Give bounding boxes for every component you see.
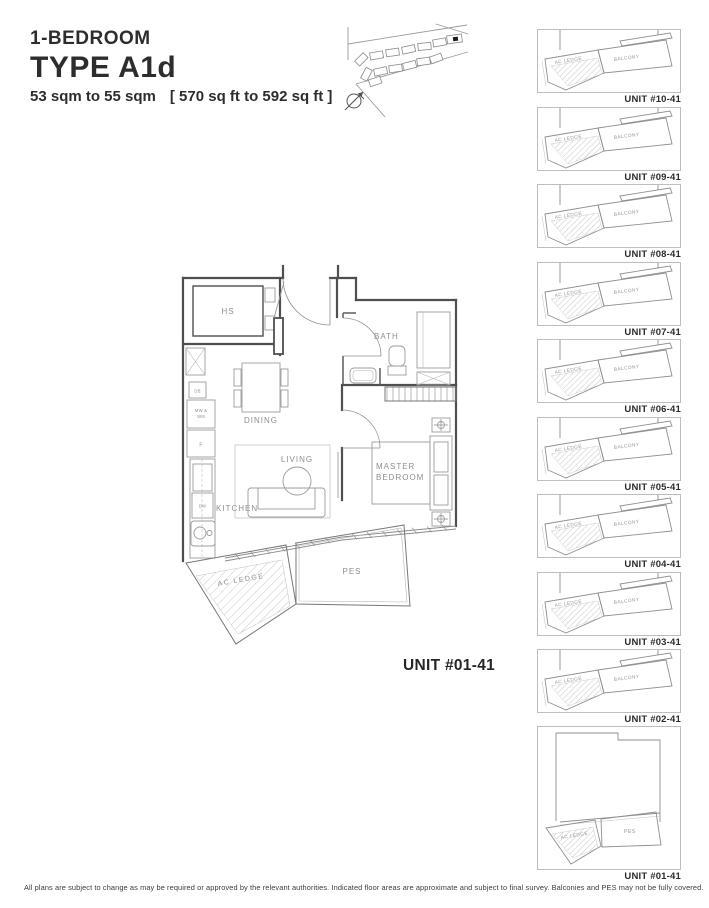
entry-door-swing bbox=[283, 278, 330, 325]
mini-unit-number: UNIT #09-41 bbox=[537, 171, 681, 185]
area-line: 53 sqm to 55 sqm[ 570 sq ft to 592 sq ft… bbox=[30, 88, 332, 105]
bath-walls bbox=[343, 313, 380, 385]
mini-plan-box: AC LEDGE BALCONY bbox=[537, 649, 681, 713]
bath-fixtures bbox=[350, 312, 450, 385]
mini-unit-number: UNIT #10-41 bbox=[537, 93, 681, 107]
floorplan-page: { "header": { "kicker": "1-BEDROOM", "ti… bbox=[0, 0, 709, 908]
mini-balcony-label: BALCONY bbox=[614, 441, 641, 450]
fridge-label: F bbox=[199, 443, 202, 449]
kitchen-fixtures bbox=[186, 348, 215, 558]
living-label: LIVING bbox=[281, 455, 313, 464]
mini-floor-plan: AC LEDGE BALCONY bbox=[538, 418, 680, 480]
site-key-plan bbox=[340, 22, 470, 117]
mini-unit-number: UNIT #02-41 bbox=[537, 713, 681, 727]
mini-floor-plan: AC LEDGE BALCONY bbox=[538, 340, 680, 402]
mini-balcony-label: BALCONY bbox=[614, 364, 641, 373]
mw-wm-label-line1: MW & bbox=[195, 408, 207, 413]
mini-balcony-label: BALCONY bbox=[614, 674, 641, 683]
mini-plan-box: AC LEDGE BALCONY bbox=[537, 417, 681, 481]
ac-unit-icon bbox=[432, 418, 450, 432]
bath-label: BATH bbox=[374, 332, 399, 341]
mini-plan-box: AC LEDGE BALCONY bbox=[537, 29, 681, 93]
mw-wm-label-line2: WM bbox=[197, 414, 205, 419]
unit-stack-item-01: AC LEDGE PES UNIT #01-41 bbox=[537, 726, 681, 884]
mini-plan-box: AC LEDGE BALCONY bbox=[537, 494, 681, 558]
dw-label: DW bbox=[199, 504, 206, 509]
area-sqft: [ 570 sq ft to 592 sq ft ] bbox=[170, 88, 333, 105]
mini-unit-number: UNIT #06-41 bbox=[537, 403, 681, 417]
area-sqm: 53 sqm to 55 sqm bbox=[30, 88, 156, 105]
bedroom-door-swing bbox=[338, 410, 380, 498]
unit-stack-item: AC LEDGE BALCONY UNIT #04-41 bbox=[537, 494, 681, 572]
unit-stack: AC LEDGE BALCONY UNIT #10-41 AC LEDGE BA… bbox=[537, 29, 681, 727]
unit-stack-item: AC LEDGE BALCONY UNIT #06-41 bbox=[537, 339, 681, 417]
mini-plan-box-01: AC LEDGE PES bbox=[537, 726, 681, 870]
header: 1-BEDROOM TYPE A1d 53 sqm to 55 sqm[ 570… bbox=[30, 28, 332, 105]
unit-stack-item: AC LEDGE BALCONY UNIT #10-41 bbox=[537, 29, 681, 107]
mini-unit-number: UNIT #01-41 bbox=[537, 870, 681, 884]
unit-stack-item: AC LEDGE BALCONY UNIT #02-41 bbox=[537, 649, 681, 727]
mini-balcony-label: BALCONY bbox=[614, 54, 641, 63]
main-floor-plan: HS DB MW & WM F DW KITCHEN DINING LIVING bbox=[180, 260, 472, 660]
mini-balcony-label: BALCONY bbox=[614, 209, 641, 218]
bedroom-type-kicker: 1-BEDROOM bbox=[30, 28, 332, 50]
unit-stack-item: AC LEDGE BALCONY UNIT #03-41 bbox=[537, 572, 681, 650]
db-label: DB bbox=[194, 389, 200, 394]
mini-unit-number: UNIT #05-41 bbox=[537, 481, 681, 495]
kitchen-label: KITCHEN bbox=[216, 504, 258, 513]
pes-label: PES bbox=[342, 567, 361, 576]
unit-stack-item: AC LEDGE BALCONY UNIT #08-41 bbox=[537, 184, 681, 262]
unit-stack-item: AC LEDGE BALCONY UNIT #07-41 bbox=[537, 262, 681, 340]
bedroom-fixtures bbox=[372, 387, 456, 526]
mini-floor-plan: AC LEDGE BALCONY bbox=[538, 650, 680, 712]
mini-floor-plan: AC LEDGE BALCONY bbox=[538, 263, 680, 325]
mini-floor-plan: AC LEDGE BALCONY bbox=[538, 30, 680, 92]
mini-plan-box: AC LEDGE BALCONY bbox=[537, 339, 681, 403]
hs-label: HS bbox=[221, 307, 234, 316]
main-unit-number: UNIT #01-41 bbox=[403, 657, 495, 675]
mini-plan-box: AC LEDGE BALCONY bbox=[537, 107, 681, 171]
page-title: TYPE A1d bbox=[30, 51, 332, 85]
north-arrow-icon bbox=[345, 92, 364, 110]
mini-pes-label: PES bbox=[624, 829, 636, 835]
mini-balcony-label: BALCONY bbox=[614, 286, 641, 295]
disclaimer-text: All plans are subject to change as may b… bbox=[24, 883, 703, 892]
sliding-door-bands bbox=[225, 525, 456, 561]
mini-balcony-label: BALCONY bbox=[614, 519, 641, 528]
mini-unit-number: UNIT #08-41 bbox=[537, 248, 681, 262]
mini-plan-box: AC LEDGE BALCONY bbox=[537, 184, 681, 248]
mini-unit-number: UNIT #07-41 bbox=[537, 326, 681, 340]
mini-floor-plan: AC LEDGE BALCONY bbox=[538, 573, 680, 635]
mini-floor-plan-01: AC LEDGE PES bbox=[538, 727, 680, 869]
mini-plan-box: AC LEDGE BALCONY bbox=[537, 262, 681, 326]
site-building-blocks bbox=[355, 34, 463, 87]
master-bedroom-label-line2: BEDROOM bbox=[376, 473, 424, 482]
mini-balcony-label: BALCONY bbox=[614, 596, 641, 605]
mini-floor-plan: AC LEDGE BALCONY bbox=[538, 185, 680, 247]
mini-unit-number: UNIT #03-41 bbox=[537, 636, 681, 650]
unit-stack-item: AC LEDGE BALCONY UNIT #09-41 bbox=[537, 107, 681, 185]
unit-stack-item: AC LEDGE BALCONY UNIT #05-41 bbox=[537, 417, 681, 495]
ac-unit-icon bbox=[432, 512, 450, 526]
mini-balcony-label: BALCONY bbox=[614, 131, 641, 140]
master-bedroom-label-line1: MASTER bbox=[376, 462, 415, 471]
mini-floor-plan: AC LEDGE BALCONY bbox=[538, 108, 680, 170]
dining-label: DINING bbox=[244, 416, 278, 425]
mini-unit-number: UNIT #04-41 bbox=[537, 558, 681, 572]
dining-furniture bbox=[234, 363, 288, 412]
highlighted-unit-marker bbox=[453, 37, 459, 42]
mini-floor-plan: AC LEDGE BALCONY bbox=[538, 495, 680, 557]
mini-plan-box: AC LEDGE BALCONY bbox=[537, 572, 681, 636]
